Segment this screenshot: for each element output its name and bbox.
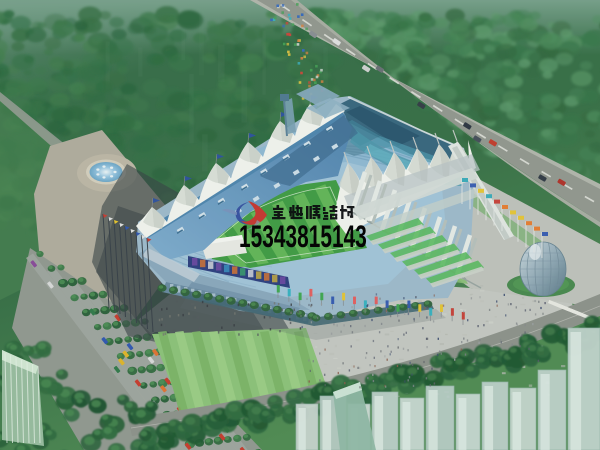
svg-text:15343815143: 15343815143: [239, 219, 367, 254]
